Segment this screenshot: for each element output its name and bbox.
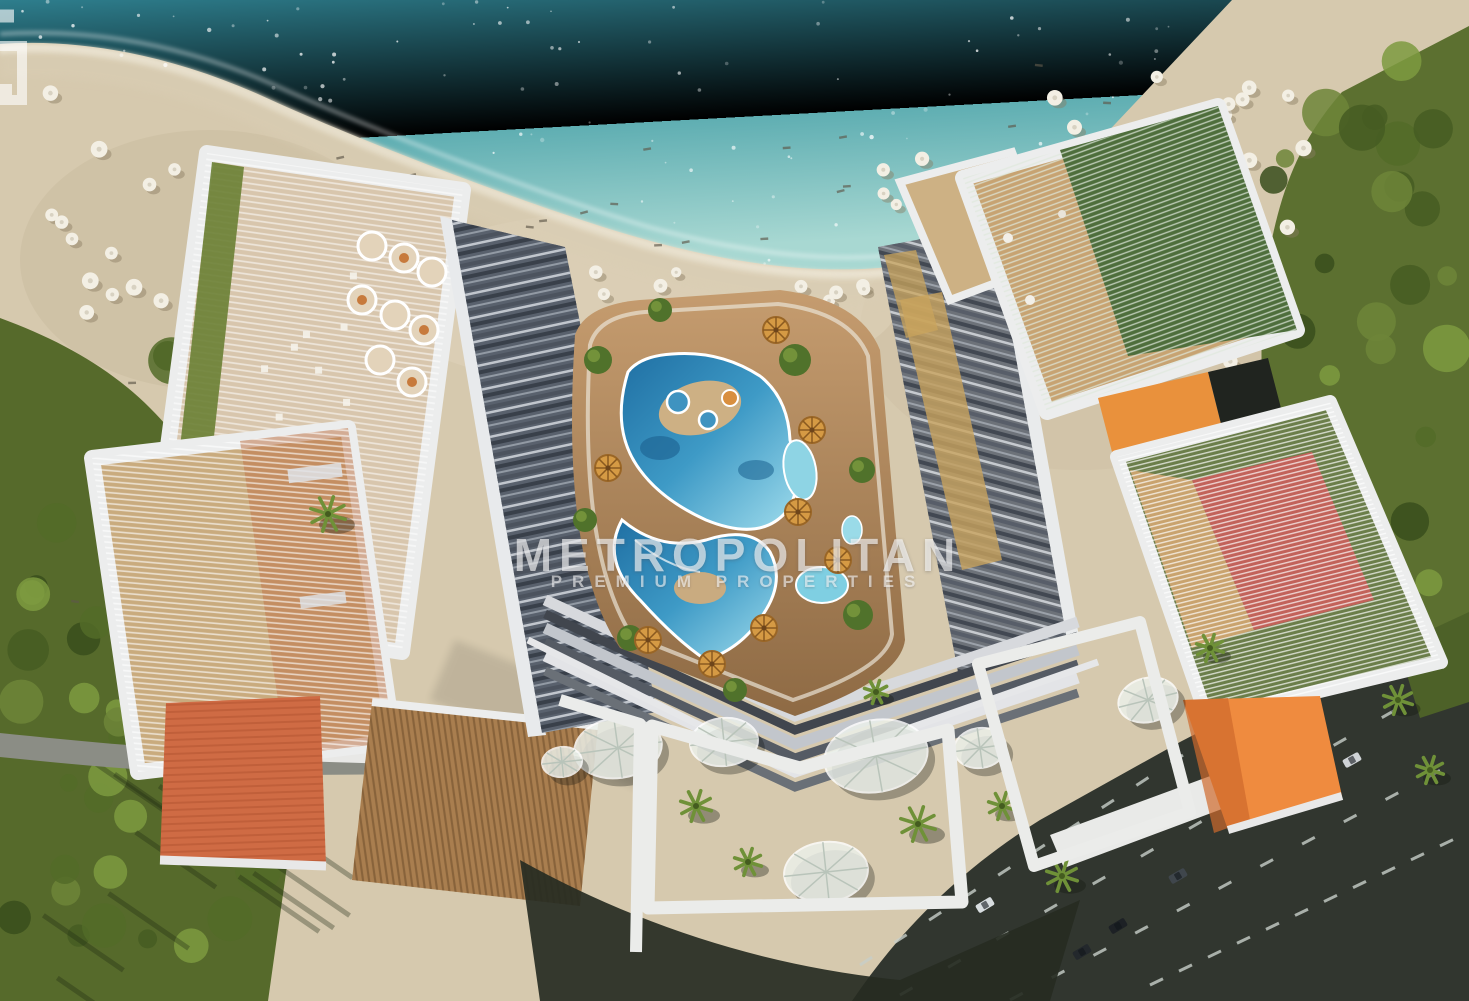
shrub-highlight bbox=[620, 628, 632, 640]
sparkle bbox=[648, 40, 651, 43]
sparkle bbox=[578, 41, 580, 43]
sparkle bbox=[763, 262, 766, 265]
sparkle bbox=[672, 6, 675, 9]
umbrella-top bbox=[1285, 225, 1290, 230]
terrace-table bbox=[341, 324, 348, 331]
sparkle bbox=[296, 7, 299, 10]
sparkle bbox=[558, 47, 561, 50]
umbrella-top bbox=[882, 192, 886, 196]
sparkle bbox=[976, 49, 979, 52]
sparkle bbox=[906, 138, 908, 140]
umbrella-top bbox=[1286, 94, 1290, 98]
shrub-highlight bbox=[783, 348, 797, 362]
parasol-pole bbox=[836, 558, 841, 563]
umbrella-top bbox=[60, 220, 64, 224]
straw-parasol bbox=[699, 651, 725, 677]
tree-canopy bbox=[94, 855, 128, 889]
umbrella-top bbox=[1240, 97, 1244, 101]
furniture-dot bbox=[1025, 295, 1035, 305]
umbrella-top bbox=[920, 157, 924, 161]
sparkle bbox=[589, 121, 591, 123]
palm-crown bbox=[915, 821, 921, 827]
tree-canopy bbox=[1362, 105, 1387, 130]
umbrella-top bbox=[1072, 125, 1077, 130]
tree-canopy bbox=[1366, 334, 1396, 364]
palm-crown bbox=[999, 803, 1005, 809]
tree-canopy bbox=[50, 855, 79, 884]
furniture-dot bbox=[1003, 233, 1013, 243]
parasol-pole bbox=[646, 638, 651, 643]
parasol-pole bbox=[796, 510, 801, 515]
round-daybed bbox=[366, 346, 394, 374]
tree-canopy bbox=[16, 577, 50, 611]
round-daybed bbox=[358, 232, 386, 260]
umbrella-top bbox=[594, 270, 598, 274]
tree-canopy bbox=[1319, 365, 1340, 386]
umbrella-top bbox=[110, 251, 114, 255]
sparkle bbox=[1119, 61, 1123, 65]
sparkle bbox=[673, 222, 675, 224]
tree-canopy bbox=[37, 503, 77, 543]
shrub-highlight bbox=[726, 681, 737, 692]
umbrella-top bbox=[1155, 75, 1159, 79]
terrace-table bbox=[291, 344, 298, 351]
sparkle bbox=[1168, 26, 1170, 28]
sparkle bbox=[21, 10, 24, 13]
sparkle bbox=[924, 108, 928, 112]
sparkle bbox=[968, 40, 970, 42]
umbrella-top bbox=[97, 147, 102, 152]
sparkle bbox=[343, 78, 346, 81]
sparkle bbox=[948, 94, 950, 96]
furniture-dot bbox=[1058, 210, 1066, 218]
sparkle bbox=[1010, 16, 1014, 20]
terrace-table bbox=[261, 365, 268, 372]
sparkle bbox=[698, 88, 702, 92]
sparkle bbox=[526, 20, 530, 24]
umbrella-top bbox=[110, 293, 114, 297]
sparkle bbox=[320, 84, 324, 88]
umbrella-top bbox=[799, 285, 803, 289]
sparkle bbox=[519, 133, 522, 136]
umbrella-top bbox=[658, 284, 662, 288]
straw-parasol bbox=[763, 317, 789, 343]
tree-canopy bbox=[1391, 502, 1429, 540]
umbrella-top bbox=[1247, 158, 1252, 163]
plunge-pool bbox=[842, 516, 862, 544]
palm-crown bbox=[693, 803, 699, 809]
sparkle bbox=[869, 135, 873, 139]
sparkle bbox=[689, 168, 693, 172]
palm-crown bbox=[325, 511, 331, 517]
sparkle bbox=[267, 20, 269, 22]
tree-canopy bbox=[114, 800, 147, 833]
tree-canopy bbox=[1371, 171, 1412, 212]
sparkle bbox=[275, 34, 279, 38]
sparkle bbox=[860, 132, 864, 136]
deep-water bbox=[738, 460, 774, 480]
sparkle bbox=[443, 74, 445, 76]
sparkle bbox=[507, 7, 509, 9]
sparkle bbox=[772, 195, 775, 198]
sparkle bbox=[678, 71, 681, 74]
sparkle bbox=[1154, 58, 1156, 60]
sparkle bbox=[822, 1, 825, 4]
umbrella-top bbox=[48, 91, 53, 96]
straw-parasol bbox=[751, 615, 777, 641]
umbrella-top bbox=[70, 237, 74, 241]
tree-canopy bbox=[60, 774, 78, 792]
palm-crown bbox=[1059, 873, 1065, 879]
sparkle bbox=[39, 35, 43, 39]
sparkle bbox=[641, 200, 643, 202]
shrub-highlight bbox=[847, 604, 861, 618]
sparkle bbox=[1109, 53, 1112, 56]
sparkle bbox=[262, 67, 266, 71]
sparkle bbox=[332, 53, 336, 57]
sparkle bbox=[837, 78, 839, 80]
sparkle bbox=[207, 28, 211, 32]
parasol-pole bbox=[606, 466, 611, 471]
sparkle bbox=[550, 46, 554, 50]
umbrella-top bbox=[85, 310, 89, 314]
sparkle bbox=[272, 86, 276, 90]
sparkle bbox=[732, 146, 736, 150]
umbrella-top bbox=[675, 271, 678, 274]
parasol-pole bbox=[810, 428, 815, 433]
straw-parasol bbox=[799, 417, 825, 443]
sparkle bbox=[790, 157, 792, 159]
daybed-cushion bbox=[399, 253, 409, 263]
sparkle bbox=[81, 6, 83, 8]
sparkle bbox=[816, 22, 820, 26]
sparkle bbox=[891, 111, 895, 115]
umbrella-top bbox=[148, 183, 152, 187]
sparkle bbox=[1039, 142, 1043, 146]
island-lounge bbox=[722, 390, 738, 406]
palm-crown bbox=[1207, 645, 1213, 651]
island-spa bbox=[699, 411, 717, 429]
palm-crown bbox=[1427, 767, 1433, 773]
sparkle bbox=[651, 140, 653, 142]
umbrella-top bbox=[88, 278, 93, 283]
straw-parasol bbox=[595, 455, 621, 481]
terrace-table bbox=[315, 367, 322, 374]
tree-canopy bbox=[1415, 427, 1436, 448]
umbrella-top bbox=[602, 292, 606, 296]
umbrella-top bbox=[1247, 86, 1251, 90]
sparkle bbox=[540, 138, 544, 142]
round-daybed bbox=[418, 258, 446, 286]
sparkle bbox=[173, 16, 175, 18]
sparkle bbox=[725, 62, 729, 66]
sparkle bbox=[123, 50, 125, 52]
aerial-render: METROPOLITAN PREMIUM PROPERTIES bbox=[0, 0, 1469, 1001]
sparkle bbox=[768, 259, 771, 262]
shrub-highlight bbox=[588, 350, 601, 363]
sparkle bbox=[834, 223, 837, 226]
terrace-table bbox=[303, 331, 310, 338]
tree-canopy bbox=[1415, 569, 1442, 596]
straw-parasol bbox=[825, 547, 851, 573]
sparkle bbox=[120, 53, 124, 57]
umbrella-top bbox=[1227, 102, 1231, 106]
daybed-cushion bbox=[419, 325, 429, 335]
daybed-cushion bbox=[357, 295, 367, 305]
straw-parasol bbox=[785, 499, 811, 525]
terrace-table bbox=[276, 414, 283, 421]
shrub-highlight bbox=[576, 511, 587, 522]
sparkle bbox=[732, 200, 734, 202]
slatted-pavilion bbox=[352, 702, 598, 906]
terrace-table bbox=[350, 272, 357, 279]
tree-canopy bbox=[1423, 325, 1469, 372]
parasol-pole bbox=[710, 662, 715, 667]
island-spa bbox=[667, 391, 689, 413]
sparkle bbox=[550, 11, 552, 13]
sparkle bbox=[1126, 18, 1130, 22]
sparkle bbox=[473, 23, 475, 25]
sparkle bbox=[530, 133, 532, 135]
sparkle bbox=[555, 82, 559, 86]
terracotta-roof bbox=[160, 696, 326, 866]
tree-canopy bbox=[1414, 109, 1453, 148]
tree-canopy bbox=[1390, 265, 1430, 305]
tree-canopy bbox=[138, 929, 157, 948]
parasol-pole bbox=[774, 328, 779, 333]
umbrella-top bbox=[132, 285, 137, 290]
tree-canopy bbox=[69, 683, 100, 714]
tree-canopy bbox=[1382, 41, 1422, 81]
sparkle bbox=[493, 152, 495, 154]
frame-edge bbox=[160, 860, 326, 866]
sparkle bbox=[1086, 113, 1089, 116]
daybed-cushion bbox=[407, 377, 417, 387]
umbrella-top bbox=[1052, 95, 1057, 100]
sparkle bbox=[232, 24, 235, 27]
sparkle bbox=[521, 87, 525, 91]
sparkle bbox=[1112, 96, 1114, 98]
shrub-highlight bbox=[852, 460, 864, 472]
tree-canopy bbox=[174, 928, 209, 963]
tree-canopy bbox=[1276, 149, 1294, 167]
sparkle bbox=[137, 14, 140, 17]
sparkle bbox=[498, 21, 502, 25]
deep-water bbox=[640, 436, 680, 460]
sparkle bbox=[1017, 34, 1019, 36]
terrace-table bbox=[343, 399, 350, 406]
sparkle bbox=[332, 61, 335, 64]
sparkle bbox=[396, 41, 398, 43]
pool-island bbox=[674, 572, 726, 604]
sparkle bbox=[442, 2, 445, 5]
sparkle bbox=[71, 24, 74, 27]
tree-canopy bbox=[1315, 254, 1335, 274]
sparkle bbox=[318, 97, 322, 101]
parasol-pole bbox=[762, 626, 767, 631]
sparkle bbox=[163, 63, 167, 67]
umbrella-top bbox=[50, 213, 54, 217]
umbrella-top bbox=[862, 287, 866, 291]
sparkle bbox=[1038, 27, 1041, 30]
round-daybed bbox=[381, 301, 409, 329]
umbrella-top bbox=[173, 168, 177, 172]
scene-canvas bbox=[0, 0, 1469, 1001]
tree-canopy bbox=[82, 903, 126, 947]
tree-canopy bbox=[0, 680, 43, 724]
sparkle bbox=[665, 162, 667, 164]
straw-parasol bbox=[635, 627, 661, 653]
sparkle bbox=[756, 225, 759, 228]
sparkle bbox=[475, 0, 478, 3]
palm-crown bbox=[873, 689, 879, 695]
sparkle bbox=[328, 99, 332, 103]
palm-crown bbox=[1395, 697, 1401, 703]
sparkle bbox=[304, 86, 308, 90]
shrub-highlight bbox=[651, 301, 662, 312]
tree-canopy bbox=[1437, 266, 1457, 286]
tree-canopy bbox=[208, 896, 253, 941]
tree-canopy bbox=[1260, 166, 1288, 194]
sparkle bbox=[788, 155, 791, 158]
tree-canopy bbox=[7, 629, 49, 671]
umbrella-top bbox=[159, 298, 164, 303]
umbrella-top bbox=[1301, 146, 1306, 151]
umbrella-top bbox=[881, 168, 885, 172]
sparkle bbox=[1154, 49, 1158, 53]
sparkle bbox=[1155, 27, 1158, 30]
terracotta-texture bbox=[160, 696, 326, 866]
palm-crown bbox=[745, 859, 751, 865]
pavilion-slats bbox=[352, 702, 598, 906]
umbrella-top bbox=[895, 203, 898, 206]
umbrella-top bbox=[834, 290, 838, 294]
sparkle bbox=[300, 53, 303, 56]
